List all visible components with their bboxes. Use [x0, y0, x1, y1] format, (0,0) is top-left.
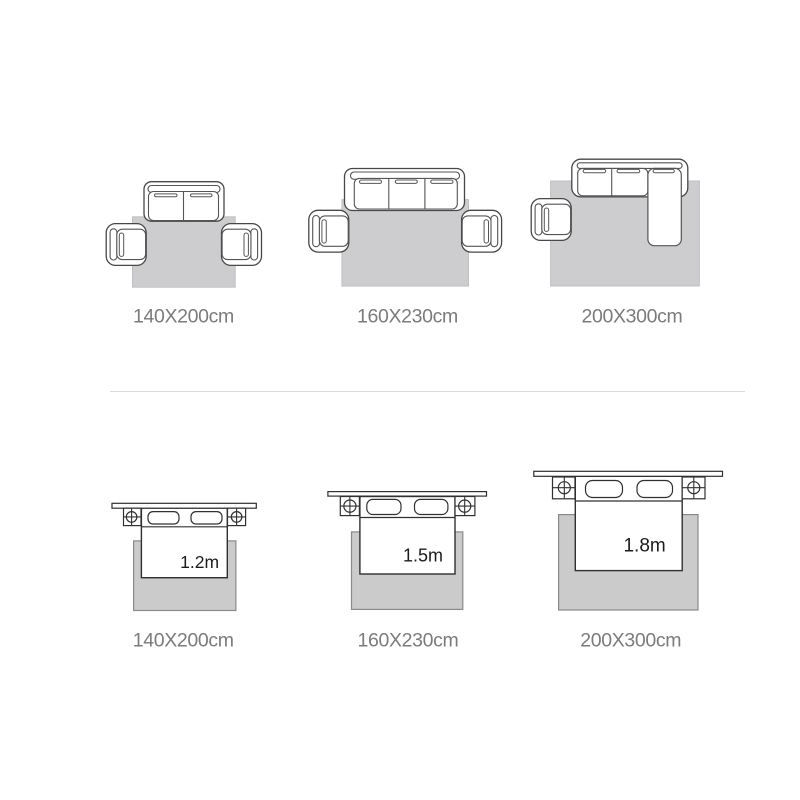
- svg-text:140X200cm: 140X200cm: [133, 306, 234, 328]
- svg-text:1.2m: 1.2m: [180, 552, 219, 572]
- svg-text:1.5m: 1.5m: [403, 546, 443, 566]
- svg-text:160X230cm: 160X230cm: [358, 630, 459, 652]
- svg-text:160X230cm: 160X230cm: [357, 306, 458, 328]
- svg-text:200X300cm: 200X300cm: [580, 630, 681, 652]
- svg-text:200X300cm: 200X300cm: [582, 306, 683, 328]
- svg-text:1.8m: 1.8m: [623, 536, 665, 557]
- svg-text:140X200cm: 140X200cm: [133, 630, 234, 652]
